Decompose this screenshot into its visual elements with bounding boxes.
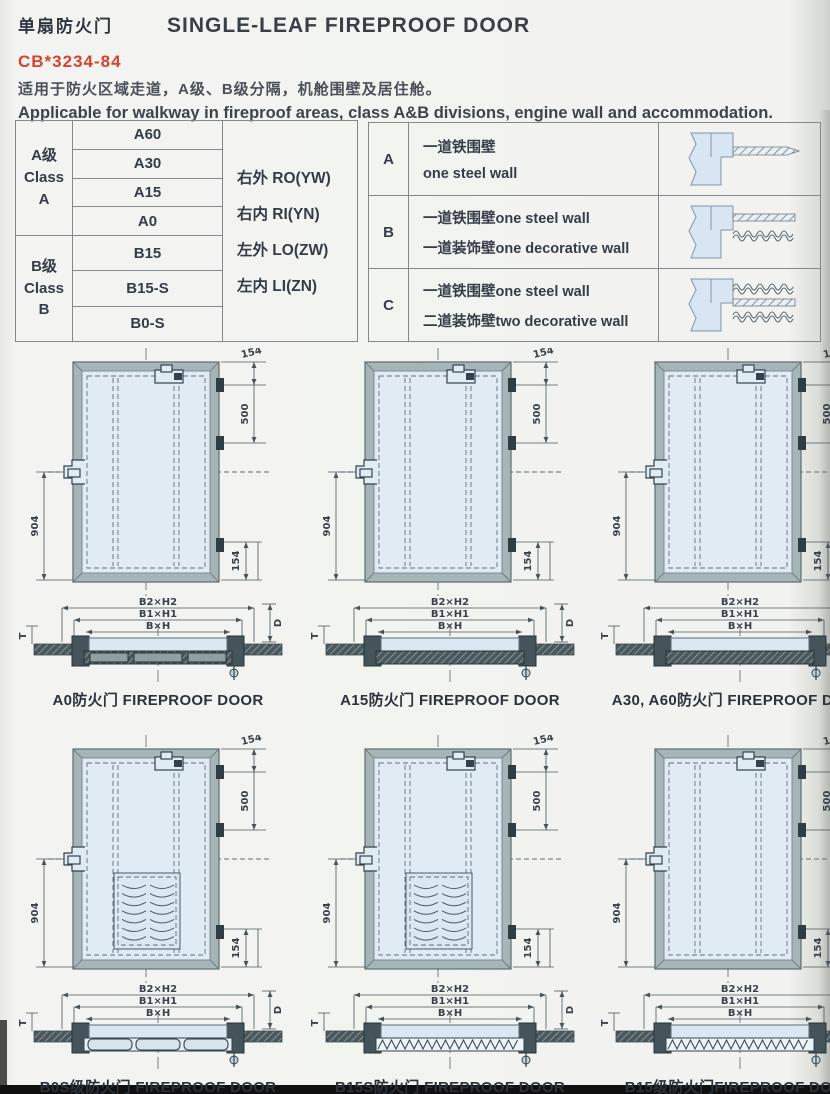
svg-text:B×H: B×H (146, 1008, 170, 1019)
door-caption-chinese: A0防火门 (52, 692, 118, 709)
door-caption-english: FIREPROOF DOOR (420, 1079, 565, 1094)
rating-cell: A60 (73, 121, 223, 150)
svg-text:154: 154 (523, 938, 534, 959)
door-caption: A15防火门 FIREPROOF DOOR (310, 689, 590, 710)
code-right-outside: 右外 RO(YW) (237, 166, 357, 188)
door-front-drawing: 154500904154 (600, 735, 830, 983)
page-title-english: SINGLE-LEAF FIREPROOF DOOR (167, 14, 530, 38)
standard-number: CB*3234-84 (18, 52, 818, 72)
svg-text:904: 904 (612, 516, 623, 537)
wall-section-diagram (665, 127, 815, 191)
svg-text:B1×H1: B1×H1 (431, 996, 469, 1007)
svg-text:500: 500 (822, 404, 830, 425)
door-figure: 154500904154B2×H2B1×H1B×HDTB15级防火门FIREPR… (590, 735, 830, 1094)
door-figure: 154500904154B2×H2B1×H1B×HDTA30, A60防火门 F… (590, 348, 830, 736)
door-section-drawing: B2×H2B1×H1B×HDT (310, 596, 590, 688)
svg-text:154: 154 (231, 551, 242, 572)
svg-text:B1×H1: B1×H1 (431, 609, 469, 620)
svg-text:B1×H1: B1×H1 (721, 996, 759, 1007)
svg-text:T: T (310, 632, 321, 639)
door-figure: 154500904154B2×H2B1×H1B×HDTA15防火门 FIREPR… (300, 348, 600, 736)
wall-diagram-cell (659, 127, 820, 191)
svg-text:B2×H2: B2×H2 (721, 984, 759, 995)
svg-text:500: 500 (240, 404, 251, 425)
wall-type-line: one steel wall (423, 166, 658, 182)
door-caption-english: FIREPROOF DOOR (414, 692, 559, 709)
svg-text:154: 154 (532, 735, 555, 748)
door-caption-chinese: B0S级防火门 (40, 1079, 131, 1094)
wall-type-key: B (369, 196, 409, 269)
code-right-inside: 右内 RI(YN) (237, 202, 357, 224)
door-front-drawing: 154500904154 (18, 348, 298, 596)
wall-section-diagram (665, 273, 815, 337)
door-front-drawing: 154500904154 (310, 348, 590, 596)
door-caption: A30, A60防火门 FIREPROOF DOOR (600, 689, 830, 710)
door-section-drawing: B2×H2B1×H1B×HDT (310, 983, 590, 1075)
wall-type-line: 一道铁围壁one steel wall (423, 207, 658, 228)
wall-type-key: A (369, 123, 409, 196)
svg-text:500: 500 (240, 791, 251, 812)
svg-text:B2×H2: B2×H2 (139, 597, 177, 608)
catalog-page: 单扇防火门 SINGLE-LEAF FIREPROOF DOOR CB*3234… (0, 0, 830, 1094)
wall-type-key: C (369, 269, 409, 342)
door-section-drawing: B2×H2B1×H1B×HDT (600, 596, 830, 688)
svg-text:T: T (18, 1019, 29, 1026)
rating-cell: B15-S (73, 271, 223, 306)
svg-text:500: 500 (822, 791, 830, 812)
svg-text:B2×H2: B2×H2 (431, 984, 469, 995)
description-chinese: 适用于防火区域走道，A级、B级分隔，机舱围壁及居住舱。 (18, 78, 818, 99)
svg-text:B2×H2: B2×H2 (721, 597, 759, 608)
svg-text:B×H: B×H (146, 621, 170, 632)
svg-text:B×H: B×H (438, 621, 462, 632)
door-caption: A0防火门 FIREPROOF DOOR (18, 689, 298, 710)
wall-diagram-cell (659, 273, 820, 337)
code-left-outside: 左外 LO(ZW) (237, 238, 357, 260)
svg-text:500: 500 (532, 791, 543, 812)
svg-text:D: D (273, 619, 284, 627)
door-caption: B15级防火门FIREPROOF DOOR (600, 1076, 830, 1094)
door-caption: B0S级防火门 FIREPROOF DOOR (18, 1076, 298, 1094)
svg-text:500: 500 (532, 404, 543, 425)
door-caption-english: FIREPROOF DOOR (714, 1079, 830, 1094)
svg-text:T: T (310, 1019, 321, 1026)
svg-text:904: 904 (322, 516, 333, 537)
wall-type-line: 一道铁围壁one steel wall (423, 280, 658, 301)
svg-text:D: D (273, 1006, 284, 1014)
door-front-drawing: 154500904154 (600, 348, 830, 596)
page-header: 单扇防火门 SINGLE-LEAF FIREPROOF DOOR CB*3234… (18, 12, 818, 123)
direction-codes-cell: 右外 RO(YW) 右内 RI(YN) 左外 LO(ZW) 左内 LI(ZN) (223, 121, 358, 342)
door-figure: 154500904154B2×H2B1×H1B×HDTB15S防火门 FIREP… (300, 735, 600, 1094)
rating-cell: A30 (73, 149, 223, 178)
door-caption-chinese: B15S防火门 (335, 1079, 420, 1094)
svg-text:154: 154 (822, 348, 830, 361)
wall-type-line: 二道装饰壁two decorative wall (423, 310, 658, 331)
door-caption-english: FIREPROOF DOOR (118, 692, 263, 709)
scan-edge-shadow-left (0, 1020, 7, 1094)
class-a-label: A级 Class A (16, 121, 73, 236)
door-section-drawing: B2×H2B1×H1B×HDT (18, 983, 298, 1075)
door-caption-chinese: A15防火门 (340, 692, 414, 709)
code-left-inside: 左内 LI(ZN) (237, 274, 357, 296)
rating-cell: B0-S (73, 306, 223, 341)
door-front-drawing: 154500904154 (310, 735, 590, 983)
svg-text:B×H: B×H (728, 1008, 752, 1019)
fire-class-table: A级 Class A A60 右外 RO(YW) 右内 RI(YN) 左外 LO… (15, 120, 358, 342)
svg-text:D: D (565, 1006, 576, 1014)
wall-section-diagram (665, 200, 815, 264)
door-caption-english: FIREPROOF DOOR (131, 1079, 276, 1094)
svg-text:D: D (565, 619, 576, 627)
rating-cell: A0 (73, 207, 223, 236)
svg-text:904: 904 (322, 903, 333, 924)
wall-type-table: A 一道铁围壁 one steel wall B 一道铁围壁one steel … (368, 122, 821, 342)
svg-text:T: T (600, 632, 611, 639)
door-figure: 154500904154B2×H2B1×H1B×HDTB0S级防火门 FIREP… (8, 735, 308, 1094)
wall-diagram-cell (659, 200, 820, 264)
door-caption-english: FIREPROOF DOOR (723, 692, 830, 709)
class-b-label: B级 Class B (16, 236, 73, 342)
door-caption-chinese: B15级防火门 (625, 1079, 715, 1094)
svg-text:B2×H2: B2×H2 (431, 597, 469, 608)
svg-text:904: 904 (30, 903, 41, 924)
wall-type-line: 一道装饰壁one decorative wall (423, 237, 658, 258)
rating-cell: B15 (73, 236, 223, 271)
svg-text:B×H: B×H (438, 1008, 462, 1019)
svg-text:B1×H1: B1×H1 (721, 609, 759, 620)
door-front-drawing: 154500904154 (18, 735, 298, 983)
page-title-chinese: 单扇防火门 (18, 12, 113, 37)
svg-text:B×H: B×H (728, 621, 752, 632)
svg-text:154: 154 (813, 938, 824, 959)
svg-text:T: T (18, 632, 29, 639)
rating-cell: A15 (73, 178, 223, 207)
svg-text:154: 154 (523, 551, 534, 572)
svg-text:B1×H1: B1×H1 (139, 609, 177, 620)
wall-type-line: 一道铁围壁 (423, 136, 658, 157)
svg-text:154: 154 (532, 348, 555, 361)
svg-text:T: T (600, 1019, 611, 1026)
svg-text:154: 154 (231, 938, 242, 959)
door-section-drawing: B2×H2B1×H1B×HDT (600, 983, 830, 1075)
door-caption-chinese: A30, A60防火门 (612, 692, 723, 709)
svg-text:B2×H2: B2×H2 (139, 984, 177, 995)
door-figure: 154500904154B2×H2B1×H1B×HDTA0防火门 FIREPRO… (8, 348, 308, 736)
svg-text:904: 904 (612, 903, 623, 924)
svg-text:154: 154 (813, 551, 824, 572)
svg-text:154: 154 (240, 348, 263, 361)
svg-text:154: 154 (822, 735, 830, 748)
door-section-drawing: B2×H2B1×H1B×HDT (18, 596, 298, 688)
svg-text:B1×H1: B1×H1 (139, 996, 177, 1007)
svg-text:154: 154 (240, 735, 263, 748)
door-caption: B15S防火门 FIREPROOF DOOR (310, 1076, 590, 1094)
svg-text:904: 904 (30, 516, 41, 537)
